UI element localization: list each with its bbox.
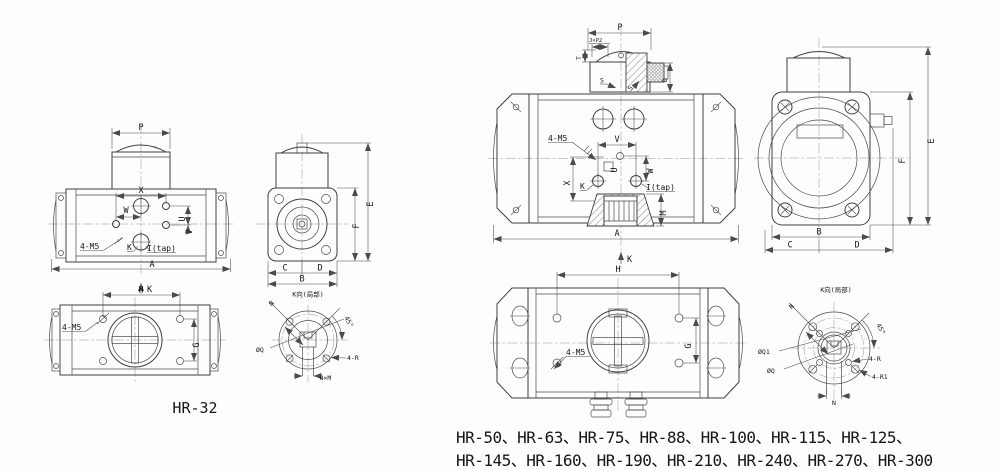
bottom-plug-fittings [590,392,647,417]
technical-drawing-page: P X W U V 4-M5 K I(tap) A K E F C D [0,0,1000,470]
label-4r1: 4-R1 [872,373,888,381]
model-list-line1: HR-50、HR-63、HR-75、HR-88、HR-100、HR-115、HR… [456,428,912,447]
dim-d: D [317,264,322,274]
dim-e: E [366,201,376,206]
dim-g: G [684,343,694,348]
dim-a: A [614,229,619,239]
dim-q1: ØQ1 [758,348,770,356]
dim-jxp2: J×P2 [589,38,602,44]
label-s1: S [600,77,604,85]
kview-title: K向(局部) [292,290,323,299]
dim-t: T [575,56,583,60]
label-4m5: 4-M5 [566,348,585,357]
dim-w: W [646,168,656,174]
hr-large-kview: K向(局部) N 45° ØQ1 ØQ 4-R 4-R1 N [758,285,888,407]
dim-q: ØQ [767,367,775,375]
dim-c: C [787,241,792,251]
hr-large-bottom-view: H G 4-M5 [490,265,748,417]
dim-c: C [282,264,287,274]
label-itap: I(tap) [646,183,675,192]
dim-v: V [614,135,619,145]
label-4m5: 4-M5 [80,242,99,251]
dim-f: F [352,223,362,228]
hr-large-side-view: E F B C D [754,38,937,253]
hr32-side-view: E F C D B [256,134,376,287]
dim-n: N [787,302,795,310]
dim-x: X [138,186,144,196]
dim-h: H [138,286,143,296]
dim-45deg: 45° [342,315,355,329]
hr-large-front-view: P J×P2 T D S S V 4-M5 U K I(tap) [488,23,744,270]
label-4r: 4-R [347,354,359,362]
dim-b: B [816,228,821,238]
dim-p: P [617,23,622,33]
label-4m5: 4-M5 [548,134,567,143]
dim-v: V [185,229,195,234]
kview-title: K向(局部) [820,285,851,294]
large-side-cap [787,58,850,92]
model-list-line2: HR-145、HR-160、HR-190、HR-210、HR-240、HR-27… [456,451,933,470]
name-plate [797,125,843,138]
dim-g: G [192,342,202,347]
dim-x: X [563,180,573,186]
dim-p: P [138,123,143,133]
dim-m: M [659,210,669,215]
model-list: HR-50、HR-63、HR-75、HR-88、HR-100、HR-115、HR… [456,428,933,470]
label-k: K [127,243,132,252]
dim-u: U [178,216,188,221]
dim-d: D [854,241,859,251]
large-side-flange [772,92,870,225]
dim-e: E [927,138,937,143]
dim-f: F [898,158,908,163]
label-itap: I(tap) [147,244,176,253]
dim-q: ØQ [256,346,264,354]
dim-h: H [615,265,620,275]
dim-a: A [149,260,154,270]
view-direction-k: K [147,285,153,295]
dim-n2: N [832,399,836,407]
dim-d: D [661,78,669,82]
dim-45deg: 45° [874,322,887,336]
dim-nxm: N×M [320,374,332,382]
hr32-front-view: P X W U V 4-M5 K I(tap) A K [48,123,234,295]
label-k: K [580,182,585,191]
hr32-bottom-view: H G 4-M5 HR-32 [44,286,226,418]
drawing-svg: P X W U V 4-M5 K I(tap) A K E F C D [0,0,1000,470]
model-label-hr32: HR-32 [172,399,217,417]
dim-b: B [299,275,304,285]
dim-u: U [610,167,620,172]
view-direction-k: K [627,255,633,265]
label-4m5: 4-M5 [62,323,81,332]
air-fitting [870,114,884,127]
hr32-kview: K向(局部) N 45° ØQ 4-R N×M [256,290,359,383]
label-4r: 4-R [869,355,881,363]
dim-w: W [123,206,129,216]
